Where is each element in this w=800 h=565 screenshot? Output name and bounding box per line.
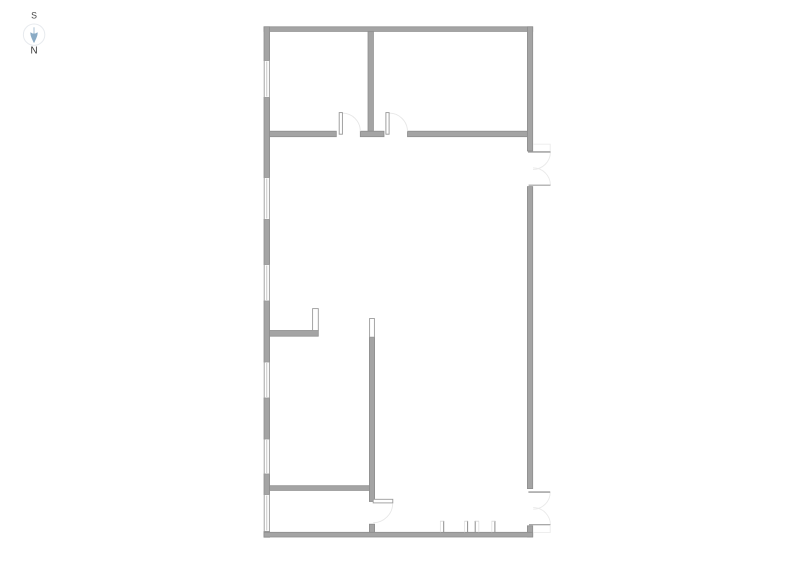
svg-text:N: N xyxy=(30,46,37,57)
svg-text:S: S xyxy=(31,11,37,21)
